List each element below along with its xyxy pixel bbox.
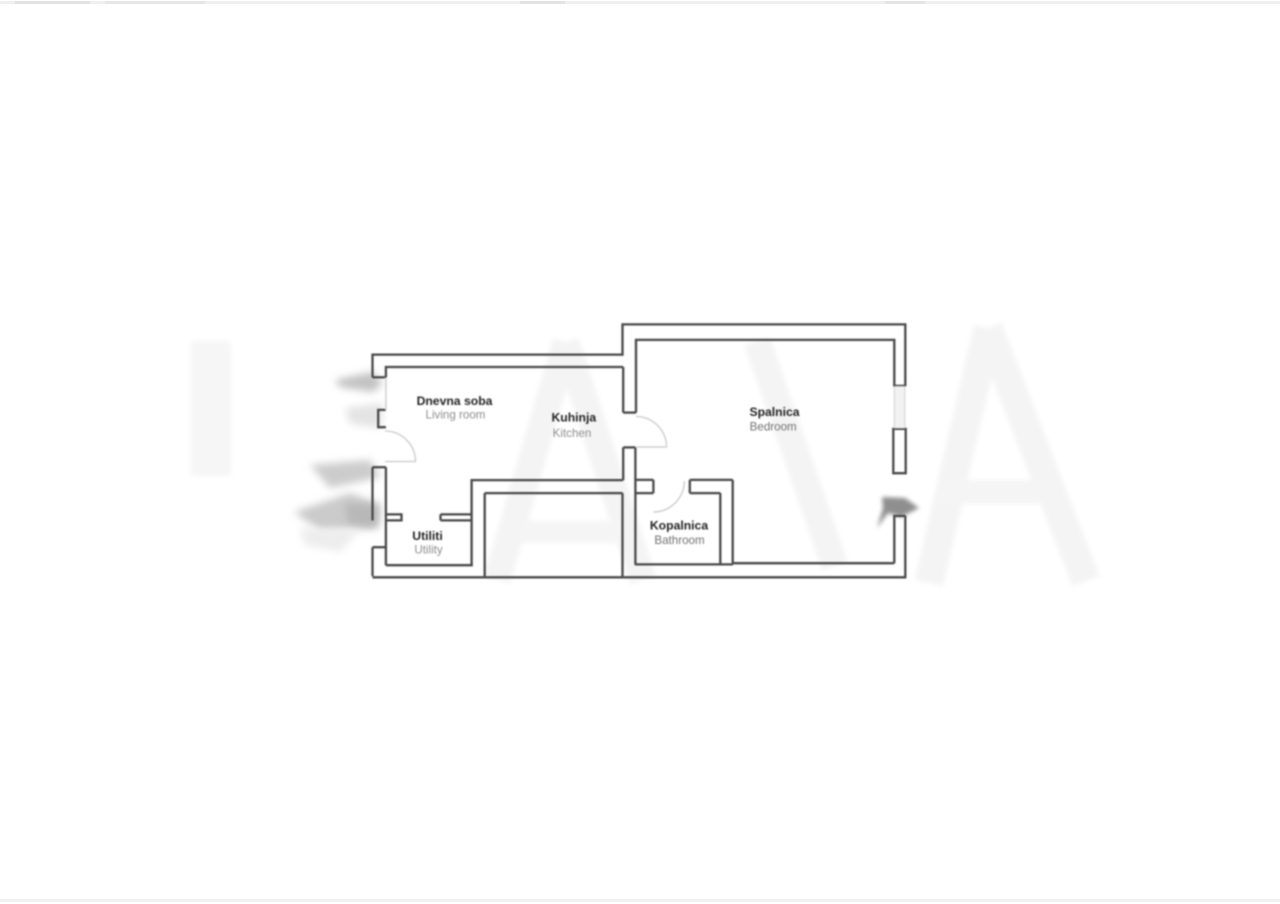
svg-text:Bathroom: Bathroom — [654, 534, 704, 547]
svg-text:Dnevna soba: Dnevna soba — [417, 394, 493, 408]
svg-text:Kopalnica: Kopalnica — [650, 519, 708, 533]
svg-text:Kitchen: Kitchen — [553, 427, 592, 440]
svg-text:Spalnica: Spalnica — [749, 405, 799, 419]
svg-text:Kuhinja: Kuhinja — [551, 410, 596, 424]
svg-text:Living room: Living room — [426, 409, 486, 422]
svg-text:Utility: Utility — [414, 544, 443, 557]
svg-text:Utiliti: Utiliti — [412, 529, 442, 543]
svg-text:Bedroom: Bedroom — [750, 421, 797, 434]
